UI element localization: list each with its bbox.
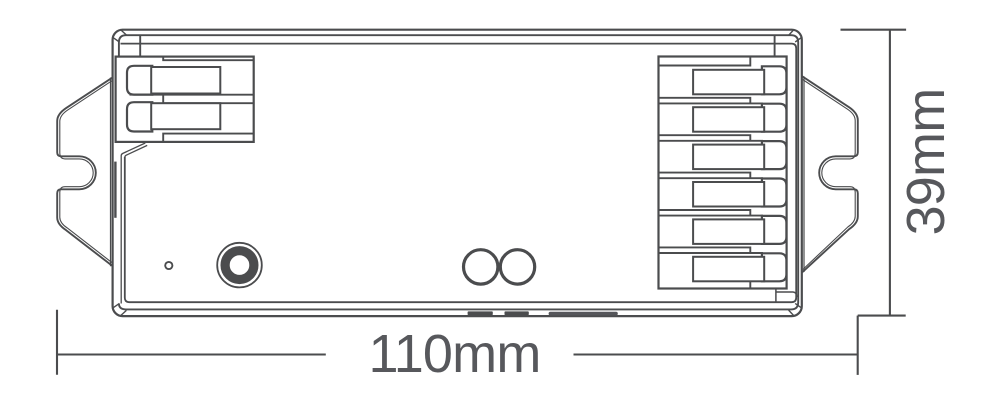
svg-text:39mm: 39mm bbox=[896, 89, 956, 236]
svg-text:110mm: 110mm bbox=[368, 324, 540, 384]
